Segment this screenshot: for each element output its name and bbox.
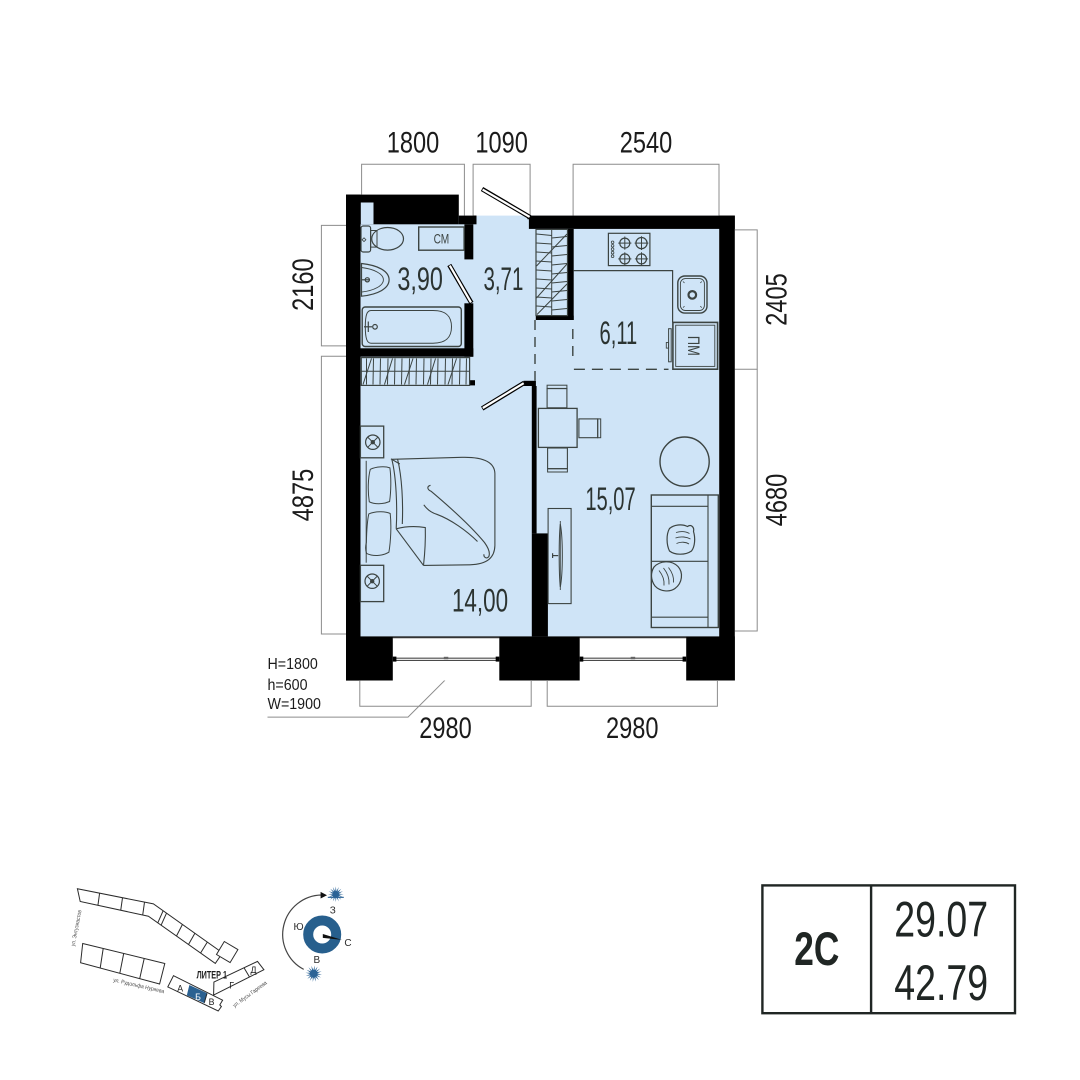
svg-text:3,90: 3,90 xyxy=(397,260,443,297)
svg-text:H=1800: H=1800 xyxy=(268,657,318,674)
svg-text:6,11: 6,11 xyxy=(600,315,638,351)
svg-text:С: С xyxy=(344,938,351,949)
svg-text:ПМ: ПМ xyxy=(683,336,702,356)
svg-text:15,07: 15,07 xyxy=(585,481,635,517)
svg-text:2405: 2405 xyxy=(760,273,793,325)
svg-text:2980: 2980 xyxy=(606,711,658,744)
svg-text:В: В xyxy=(209,997,215,1007)
svg-text:1800: 1800 xyxy=(387,126,439,159)
svg-text:2540: 2540 xyxy=(620,126,672,159)
svg-text:2160: 2160 xyxy=(286,258,319,310)
svg-text:ЛИТЕР 1: ЛИТЕР 1 xyxy=(197,969,227,981)
svg-text:42.79: 42.79 xyxy=(894,956,988,1011)
svg-text:З: З xyxy=(330,905,336,916)
svg-text:h=600: h=600 xyxy=(268,678,308,695)
svg-text:Д: Д xyxy=(251,965,257,975)
svg-text:29.07: 29.07 xyxy=(894,892,988,947)
svg-text:2С: 2С xyxy=(794,922,839,975)
svg-text:А: А xyxy=(177,983,183,993)
svg-text:14,00: 14,00 xyxy=(452,583,508,619)
svg-text:В: В xyxy=(314,955,321,966)
svg-text:1090: 1090 xyxy=(475,126,527,159)
svg-text:4875: 4875 xyxy=(286,469,319,521)
svg-text:Б: Б xyxy=(195,992,201,1002)
svg-text:Ю: Ю xyxy=(294,922,304,933)
svg-text:4680: 4680 xyxy=(760,474,793,526)
svg-text:2980: 2980 xyxy=(419,711,471,744)
svg-text:Г: Г xyxy=(229,980,234,990)
svg-text:W=1900: W=1900 xyxy=(268,696,321,713)
svg-text:3,71: 3,71 xyxy=(483,260,523,297)
svg-text:СМ: СМ xyxy=(434,231,450,247)
